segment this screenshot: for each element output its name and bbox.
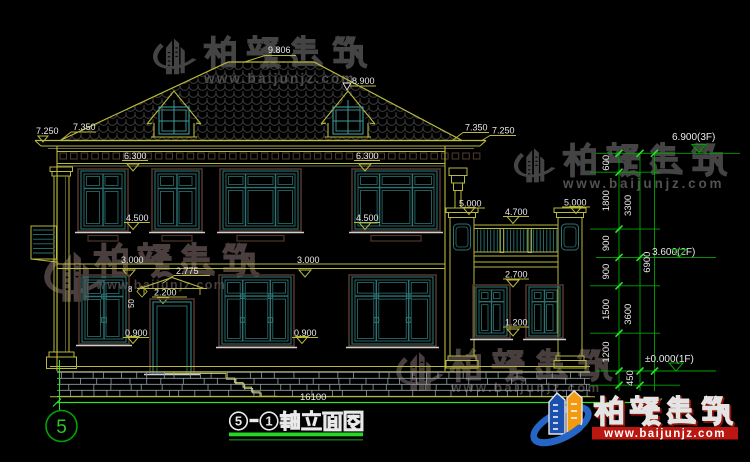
svg-text:5: 5 [56,417,67,438]
svg-text:8: 8 [128,285,133,294]
svg-text:5: 5 [235,414,242,429]
svg-text:1200: 1200 [601,341,612,362]
svg-text:6.900(3F): 6.900(3F) [672,132,715,143]
svg-text:www.baijunjz.com: www.baijunjz.com [562,176,724,191]
svg-text:50: 50 [127,299,136,308]
svg-text:4.500: 4.500 [356,213,379,223]
svg-text:1500: 1500 [601,299,612,320]
svg-text:2.775: 2.775 [176,266,199,276]
svg-text:600: 600 [601,155,612,171]
svg-text:3300: 3300 [623,195,634,216]
svg-text:2.200: 2.200 [154,288,177,298]
svg-text:6.300: 6.300 [356,151,379,161]
svg-text:7.250: 7.250 [36,126,59,136]
svg-text:9.806: 9.806 [268,45,291,55]
svg-text:1: 1 [265,414,272,429]
svg-text:7.350: 7.350 [465,123,488,133]
svg-text:1800: 1800 [601,190,612,211]
svg-text:7.350: 7.350 [73,122,96,132]
svg-text:3600: 3600 [623,304,634,325]
svg-text:900: 900 [601,235,612,251]
svg-text:7.250: 7.250 [492,126,515,136]
svg-text:900: 900 [601,264,612,280]
svg-text:2.700: 2.700 [505,270,528,280]
svg-text:450: 450 [625,370,636,386]
svg-text:16100: 16100 [300,392,326,403]
svg-text:www.baijunjz.com: www.baijunjz.com [603,428,726,440]
svg-text:3.600(2F): 3.600(2F) [652,247,695,258]
svg-text:4.500: 4.500 [126,213,149,223]
svg-text:1.200: 1.200 [505,318,528,328]
svg-text:4.700: 4.700 [505,207,528,217]
svg-text:6.300: 6.300 [124,151,147,161]
svg-text:8.900: 8.900 [352,76,375,86]
